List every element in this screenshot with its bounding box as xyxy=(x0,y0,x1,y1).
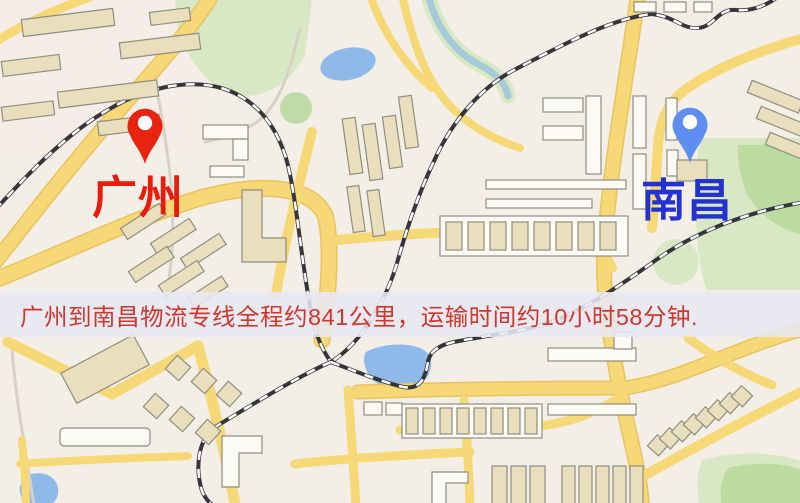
origin-map-pin-icon[interactable] xyxy=(125,104,165,166)
route-info-banner: 广州到南昌物流专线全程约841公里，运输时间约10小时58分钟. xyxy=(0,292,800,337)
pond-top xyxy=(317,43,378,86)
route-info-text: 广州到南昌物流专线全程约841公里，运输时间约10小时58分钟. xyxy=(0,298,698,332)
map[interactable]: 广州 南昌 广州到南昌物流专线全程约841公里，运输时间约10小时58分钟. xyxy=(0,0,800,503)
destination-label: 南昌 xyxy=(641,178,733,223)
map-canvas xyxy=(0,0,800,503)
origin-label: 广州 xyxy=(92,176,184,221)
destination-map-pin-icon[interactable] xyxy=(670,103,710,165)
